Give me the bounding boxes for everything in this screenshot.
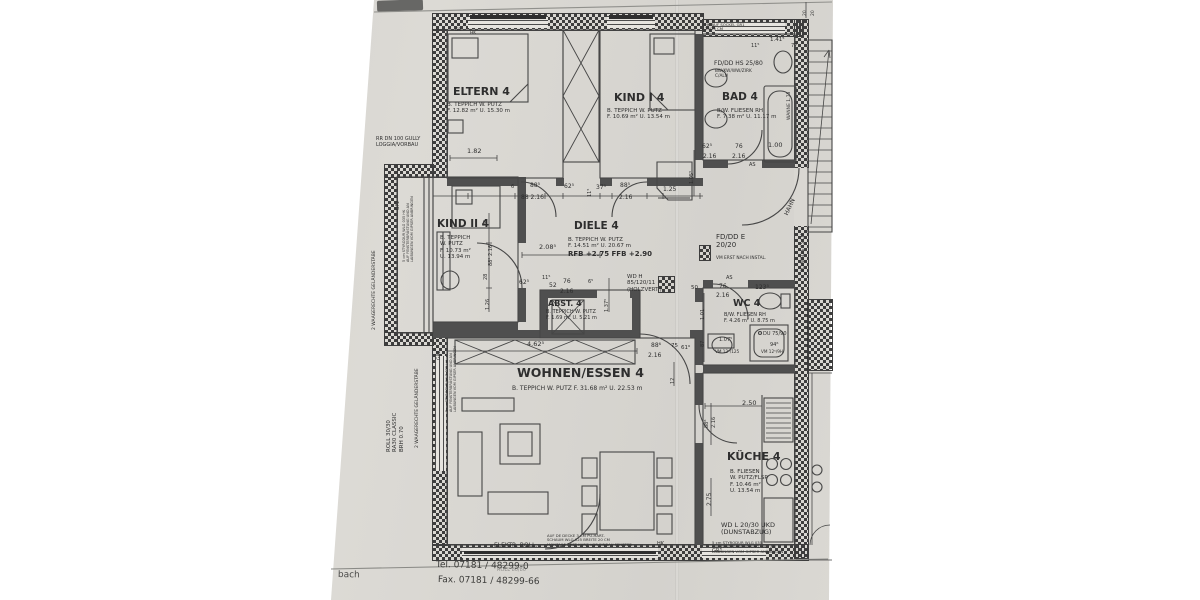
dim-label: 2.16	[619, 195, 632, 202]
note-fd-dd-hs-sub: BW/KW/WW/ZIRK C/ALU	[715, 70, 752, 80]
dim-label: 76	[735, 144, 743, 151]
dim-label: 2.16	[732, 154, 745, 161]
dim-label: 12	[671, 378, 677, 384]
plan-labels: ELTERN 4B. TEPPICH W. PUTZ F. 12.82 m² U…	[0, 0, 1200, 600]
note-fd-dd-hs: FD/DD HS 25/80	[714, 61, 763, 68]
room-diele-levels: RFB +2.75 FFB +2.90	[568, 251, 652, 259]
note-fd-dd-e-sub: VM ERST NACH INSTAL.	[716, 257, 766, 262]
dim-label: 20	[803, 10, 808, 16]
dim-label: 88⁶	[651, 343, 661, 350]
note-hk-sockel: HK AUF SOCKEL GR1 25/25 CM	[705, 23, 745, 32]
dim-label: 28	[484, 274, 490, 280]
note-gelaender: 2 WAAGERECHTE GELÄNDERSTÄBE	[415, 368, 420, 448]
dim-label: 1.00	[768, 142, 782, 149]
dim-label: 76	[563, 279, 571, 286]
note-du-dusche: DU 75/90	[763, 332, 787, 338]
dim-label: 6	[511, 185, 514, 191]
footer-faint-stamp: ROLL 80/80	[497, 568, 526, 574]
dim-label: 1.26	[486, 299, 492, 310]
dim-label: 2.16	[703, 154, 716, 161]
dim-94: 94⁶	[770, 343, 778, 349]
room-bad-spec: B/W. FLIESEN RH F. 7.38 m² U. 11.17 m	[717, 108, 776, 121]
room-kueche-title: KÜCHE 4	[727, 451, 781, 464]
room-eltern-title: ELTERN 4	[453, 86, 510, 99]
dim-label: 1.01	[701, 309, 707, 320]
dim-label: 11⁵	[542, 276, 550, 282]
room-bad-title: BAD 4	[722, 92, 758, 104]
room-kind1-title: KIND I 4	[614, 92, 664, 105]
note-gr-top: GR	[455, 29, 461, 34]
dim-label: 62⁵	[702, 144, 712, 151]
dim-label: 6⁵	[588, 280, 593, 286]
dim-label: 75	[671, 343, 678, 349]
dim-label: 62⁵	[564, 184, 574, 191]
dim-label: 11⁵	[751, 44, 759, 50]
room-wohnen-title: WOHNEN/ESSEN 4	[517, 366, 644, 380]
room-kind1-spec: B. TEPPICH W. PUTZ F. 10.69 m² U. 13.54 …	[607, 108, 670, 121]
dim-label: 2.16	[560, 289, 573, 296]
room-wohnen-spec: B. TEPPICH W. PUTZ F. 31.68 m² U. 22.53 …	[512, 386, 642, 393]
room-kueche-spec: B. FLIESEN W. PUTZ/FLSP F. 10.46 m² U. 1…	[730, 469, 768, 494]
dim-label: 20	[811, 10, 816, 16]
room-eltern-spec: B. TEPPICH W. PUTZ F. 12.82 m² U. 15.30 …	[447, 102, 510, 115]
dim-label: 88⁵	[530, 183, 540, 190]
dim-label: 1.25	[663, 187, 676, 194]
note-schwelle: SCHWELLE 15 CM	[802, 234, 807, 272]
dim-label: 37⁵	[596, 185, 606, 192]
note-as-bad: AS	[749, 163, 756, 169]
room-abst-title: ABST. 4	[548, 299, 582, 308]
footer-left-fragment: bach	[338, 570, 360, 581]
dim-label: 1.41⁵	[770, 37, 784, 43]
dim-label: 1.07⁵	[719, 338, 732, 344]
note-vm129: VM 12⁵/9H	[761, 350, 783, 355]
note-styrodur-kueche: 5 cm STYRODUR WLG 035 AUF FENSTERBRÜSTUN…	[712, 541, 783, 554]
note-wanne: WANNE 1.75	[787, 92, 792, 120]
dim-label: 61⁶	[681, 345, 690, 351]
dim-label: 26	[484, 220, 490, 226]
dim-label: 1.82	[467, 148, 481, 155]
dim-label: 2.50	[742, 400, 756, 407]
dim-label: 87	[701, 341, 707, 347]
dim-label: 2.16	[712, 417, 718, 428]
note-hk-bottom: HK	[657, 542, 664, 548]
note-gp2: GP2	[396, 201, 401, 210]
note-roll-3030: ROLL 30/30 RA30 CLASSIC BRH 0.70	[386, 413, 405, 452]
note-wd-l: WD L 20/30 UKD (DUNSTABZUG)	[721, 522, 775, 537]
note-gelaender-2: 2 WAAGERECHTE GELÄNDERSTÄBE	[372, 250, 377, 330]
note-gr2: GR2	[437, 351, 442, 360]
room-abst-spec: B. TEPPICH W. PUTZ F. 1.69 m² U. 5.21 m	[546, 310, 597, 321]
note-hahn: HAHN	[784, 198, 798, 217]
note-elektr-roll: ELEKTR. ROLL.	[494, 543, 537, 550]
room-kind2-spec: B. TEPPICH W. PUTZ F. 10.73 m² U. 13.94 …	[440, 235, 471, 260]
room-diele-spec: B. TEPPICH W. PUTZ F. 14.51 m² U. 20.67 …	[568, 237, 631, 250]
note-fd-dd-e: FD/DD E 20/20	[716, 234, 745, 250]
note-vm125: VM 12⁵/125	[715, 350, 739, 355]
dim-label: 88⁶	[705, 420, 711, 428]
room-wc-spec: B/W. FLIESEN RH F. 4.26 m² U. 8.75 m	[724, 313, 775, 324]
floorplan-screenshot: ELTERN 4B. TEPPICH W. PUTZ F. 12.82 m² U…	[0, 0, 1200, 600]
dim-label: 11⁵	[588, 189, 594, 197]
note-styrodur-left-2: 5 cm STYRODUR WLG 035 HK AUF FENSTERBRÜS…	[402, 196, 414, 262]
footer-fax: Fax. 07181 / 48299-66	[438, 575, 540, 587]
note-styrodur-left: 5 cm STYRODUR WLG 035 HK AUF FENSTERBRÜS…	[445, 346, 457, 412]
dim-label: 52	[549, 283, 557, 290]
dim-label: 88⁵	[620, 183, 630, 190]
note-as-wc: AS	[726, 276, 733, 282]
room-diele-title: DIELE 4	[574, 221, 619, 233]
note-hk-top: HK	[470, 32, 476, 37]
dim-label: 88⁵ 2.16	[489, 245, 495, 266]
note-pu-schaum: AUF DE DECKE 3 CM PU-HART- SCHAUM WLG 02…	[547, 534, 632, 547]
dim-label: 62⁵	[519, 280, 529, 287]
dim-label: 123⁵	[755, 285, 769, 292]
dim-label: 2.08⁵	[539, 244, 556, 251]
room-kind2-title: KIND II 4	[437, 219, 489, 231]
dim-label: 88 2.16	[521, 195, 544, 202]
dim-label: 76	[719, 284, 727, 291]
dim-label: 77	[791, 44, 797, 50]
dim-label: 4.62⁵	[527, 341, 544, 348]
dim-label: 2.16	[716, 293, 729, 300]
note-wd-h: WD H 85/120/11 (HOLZVERT.)	[627, 274, 662, 293]
room-wc-title: WC 4	[733, 299, 760, 310]
dim-label: 2.16	[648, 353, 661, 360]
dim-label: 2.75	[707, 493, 714, 506]
dim-label: 1.37⁵	[605, 299, 611, 312]
dim-label: 1.05⁵	[690, 171, 696, 184]
note-gully: RR DN 100 GULLY LOGGIA/VORBAU	[376, 137, 420, 148]
dim-label: 50	[691, 285, 698, 291]
note-gr1: GR1	[712, 549, 723, 555]
